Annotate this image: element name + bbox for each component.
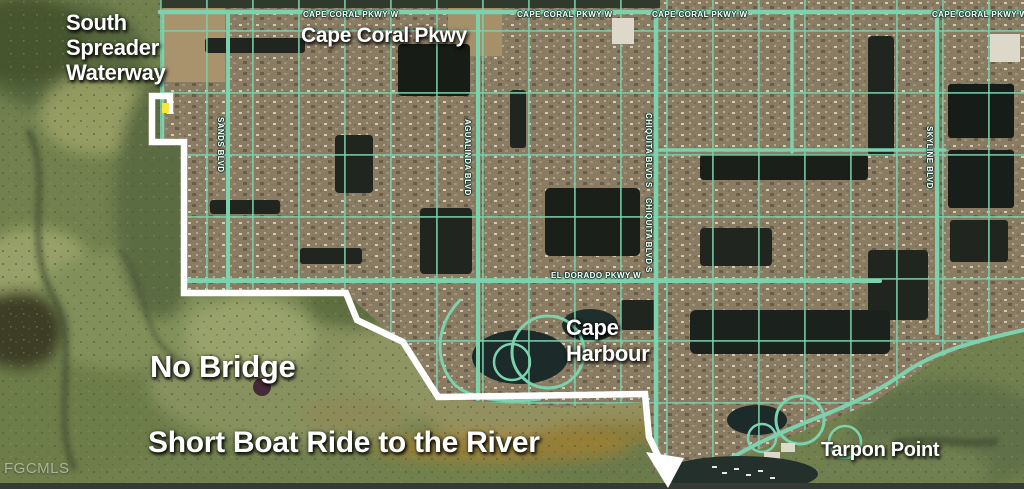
street-label: CAPE CORAL PKWY W [932,10,1024,19]
subject-property-marker [162,103,169,113]
label-line: Spreader [66,35,166,60]
bottom-edge-strip [0,483,1024,489]
label-cape-harbour: Cape Harbour [566,315,649,367]
street-label: CHIQUITA BLVD S [644,198,653,273]
label-line: South [66,10,166,35]
label-line: Harbour [566,341,649,367]
street-label: AGUALINDA BLVD [463,119,472,196]
street-label: CAPE CORAL PKWY W [303,10,398,19]
street-label: SANDS BLVD [216,117,225,172]
label-no-bridge: No Bridge [150,349,295,385]
fgcmls-watermark: FGCMLS [4,460,70,477]
label-line: Waterway [66,60,166,85]
street-label: CHIQUITA BLVD S [644,113,653,188]
mls-aerial-map-photo: South Spreader Waterway Cape Coral Pkwy … [0,0,1024,489]
label-cape-coral-pkwy: Cape Coral Pkwy [301,24,467,48]
street-label: EL DORADO PKWY W [551,271,641,280]
street-label: CAPE CORAL PKWY W [517,10,612,19]
label-south-spreader-waterway: South Spreader Waterway [66,10,166,85]
label-line: Cape [566,315,649,341]
label-tarpon-point: Tarpon Point [821,439,939,462]
street-label: CAPE CORAL PKWY W [652,10,747,19]
label-short-boat-ride: Short Boat Ride to the River [148,426,540,460]
street-label: SKYLINE BLVD [925,126,934,189]
